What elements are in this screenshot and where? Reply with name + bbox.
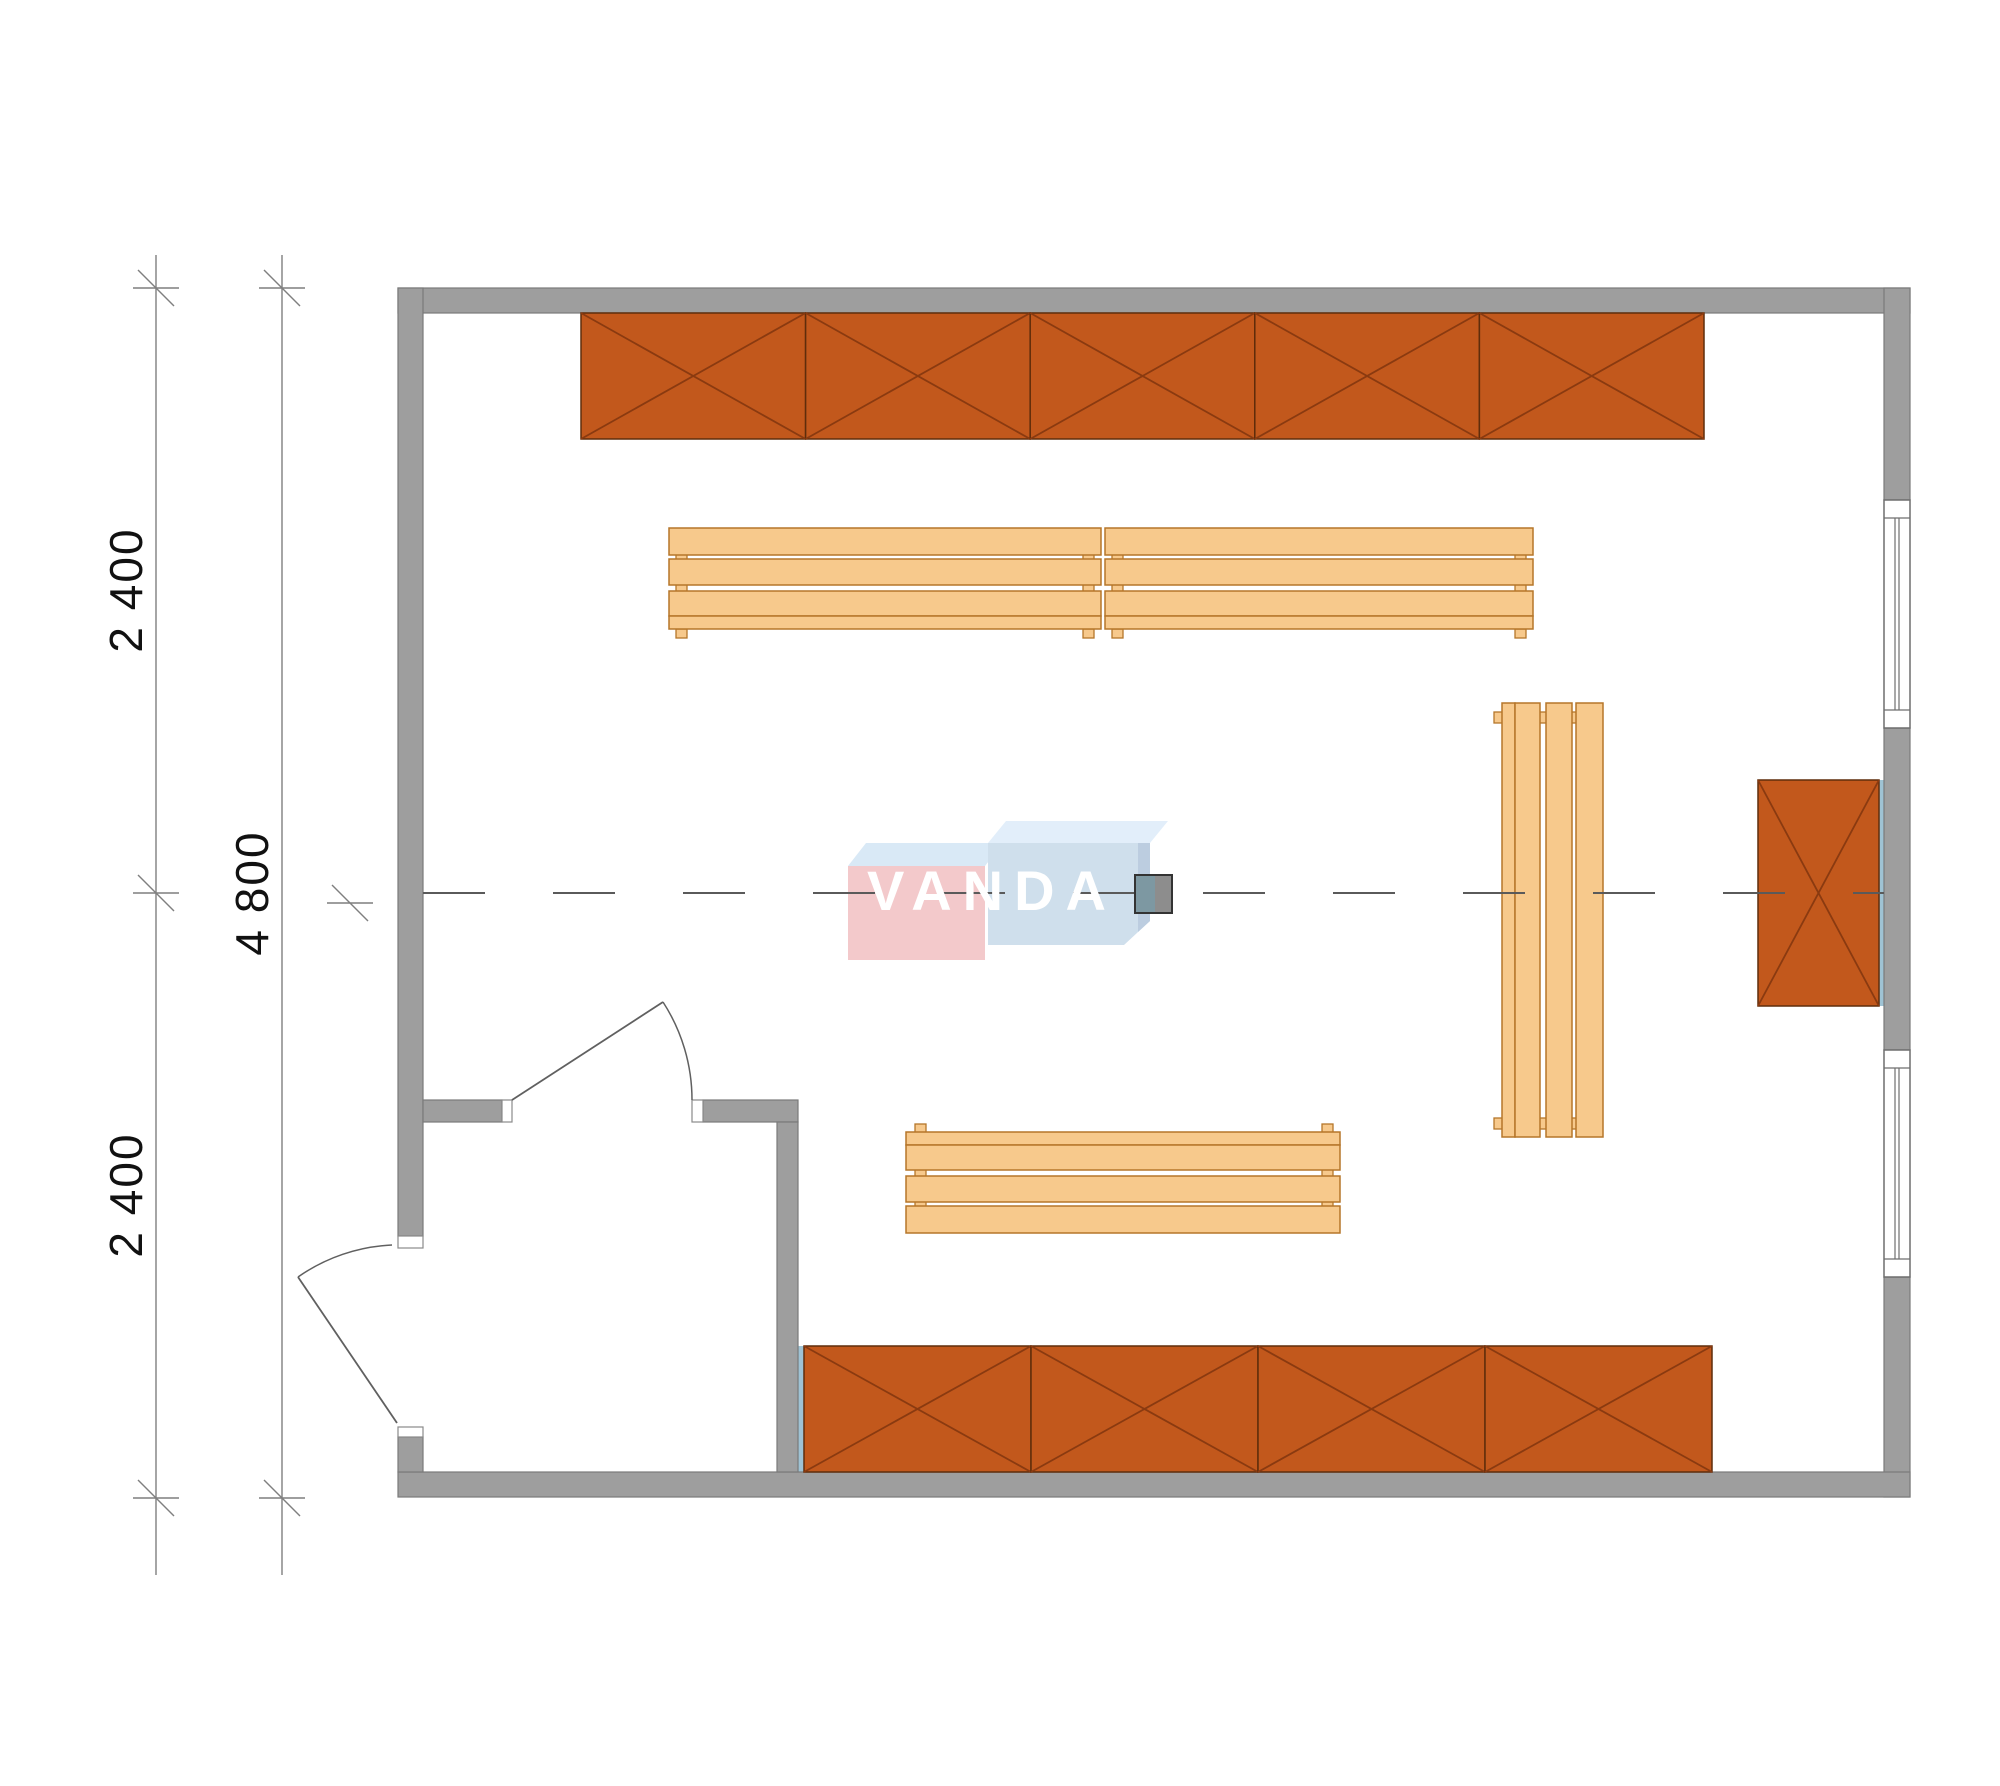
door-exterior-leaf: [298, 1277, 397, 1423]
window-lower: [1884, 1050, 1910, 1277]
bench-lower-slat: [906, 1145, 1340, 1170]
bench-lower-slat: [906, 1206, 1340, 1233]
jamb-int-door-left: [502, 1100, 512, 1122]
dimension-label-top: 2 400: [99, 527, 153, 652]
bench-upper-right-slat: [1105, 616, 1533, 629]
door-exterior-swing-arc: [298, 1245, 392, 1277]
door-interior-swing-arc: [663, 1002, 692, 1100]
dimension-label-bottom: 2 400: [99, 1132, 153, 1257]
wall-vestibule-left: [423, 1100, 502, 1122]
bench-upper-left-slat: [669, 616, 1101, 629]
bench-upper-right-foot: [1112, 629, 1123, 638]
wall-vestibule-side: [777, 1122, 798, 1472]
window-upper: [1884, 500, 1910, 728]
bench-vertical-slat: [1576, 703, 1603, 1137]
bench-lower-slat: [906, 1176, 1340, 1202]
wall-right-upper: [1884, 288, 1910, 500]
floor-plan: 2 400 4 800 2 400 VANDA: [0, 0, 2000, 1786]
bench-upper-right-slat: [1105, 591, 1533, 616]
jamb-ext-door-top: [398, 1236, 423, 1248]
bench-upper-left-foot: [1083, 629, 1094, 638]
door-interior-leaf: [512, 1002, 663, 1100]
bench-vertical-slat: [1546, 703, 1572, 1137]
bench-lower-slat: [906, 1132, 1340, 1145]
bench-vertical-slat: [1502, 703, 1515, 1137]
wall-bottom: [398, 1472, 1910, 1497]
bench-upper-left-slat: [669, 559, 1101, 585]
wall-top: [398, 288, 1910, 313]
wall-left-stub: [398, 1437, 423, 1472]
bench-upper-right-slat: [1105, 528, 1533, 555]
jamb-ext-door-bottom: [398, 1427, 423, 1437]
wall-left: [398, 288, 423, 1236]
wall-right-lower: [1884, 1277, 1910, 1497]
jamb-int-door-right: [692, 1100, 703, 1122]
bench-upper-left-foot: [676, 629, 687, 638]
centerline-marker-left: [1135, 875, 1155, 913]
bench-vertical-slat: [1515, 703, 1540, 1137]
wall-right-mid: [1884, 728, 1910, 1050]
bench-upper-right-slat: [1105, 559, 1533, 585]
bench-upper-left-slat: [669, 591, 1101, 616]
bench-upper-left-slat: [669, 528, 1101, 555]
dimension-label-total: 4 800: [225, 830, 279, 955]
vanda-watermark-text: VANDA: [867, 858, 1117, 923]
bench-upper-right-foot: [1515, 629, 1526, 638]
logo-blue-bevel: [988, 821, 1168, 843]
wall-vestibule-right: [703, 1100, 798, 1122]
centerline-marker-right: [1155, 875, 1172, 913]
